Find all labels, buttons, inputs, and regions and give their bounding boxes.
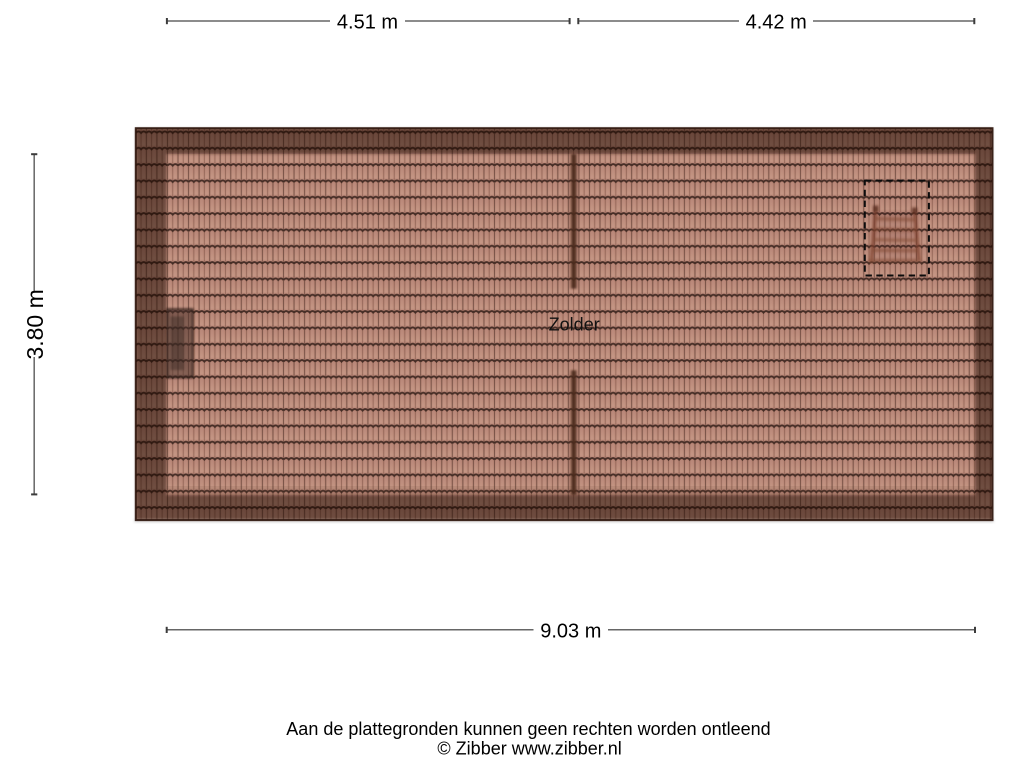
svg-text:Aan de plattegronden kunnen ge: Aan de plattegronden kunnen geen rechten… <box>286 719 770 739</box>
svg-text:4.42 m: 4.42 m <box>746 11 807 33</box>
svg-text:3.80 m: 3.80 m <box>22 289 48 359</box>
svg-text:4.51 m: 4.51 m <box>337 11 398 33</box>
svg-text:© Zibber www.zibber.nl: © Zibber www.zibber.nl <box>437 738 621 758</box>
svg-text:9.03 m: 9.03 m <box>540 620 601 642</box>
svg-text:Zolder: Zolder <box>549 315 600 335</box>
